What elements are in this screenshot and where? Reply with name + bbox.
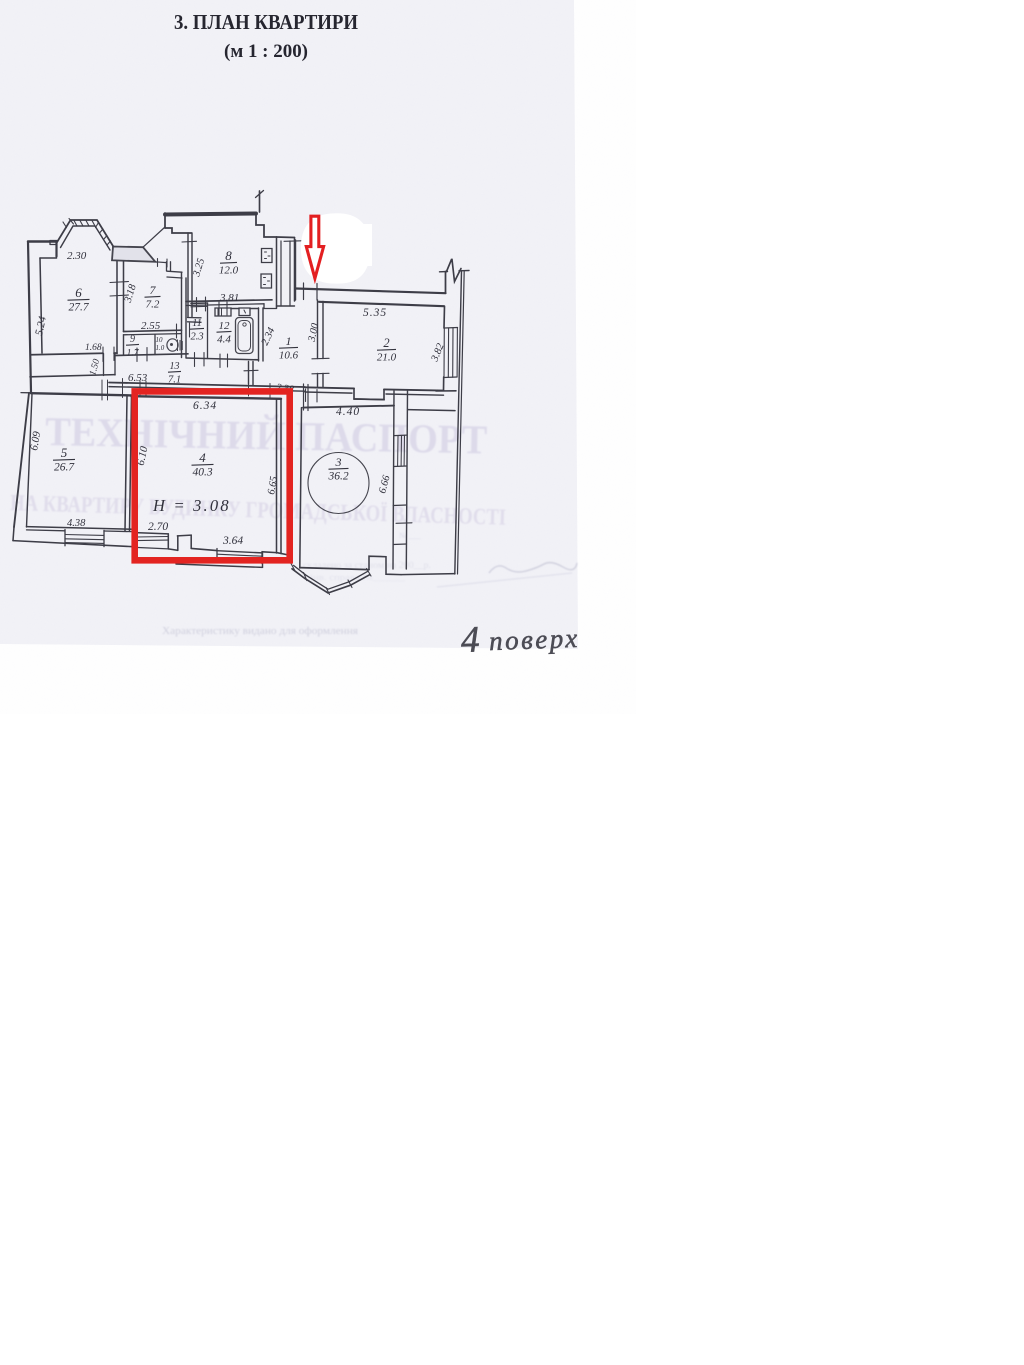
- svg-text:4: 4: [199, 450, 206, 465]
- svg-text:Н = 3.08: Н = 3.08: [152, 496, 231, 515]
- svg-text:2.55: 2.55: [141, 320, 161, 332]
- svg-text:11: 11: [192, 318, 202, 329]
- svg-text:2.3: 2.3: [190, 332, 203, 343]
- svg-text:13: 13: [170, 361, 180, 372]
- svg-text:2: 2: [383, 336, 389, 350]
- svg-text:9: 9: [130, 334, 135, 345]
- svg-text:1.68: 1.68: [85, 343, 102, 353]
- svg-text:40.3: 40.3: [192, 467, 212, 479]
- svg-text:7: 7: [150, 283, 157, 297]
- svg-text:4.38: 4.38: [67, 518, 86, 529]
- svg-text:3. ПЛАН КВАРТИРИ: 3. ПЛАН КВАРТИРИ: [174, 10, 358, 34]
- svg-text:(м 1 : 200): (м 1 : 200): [224, 41, 308, 62]
- svg-text:7.1: 7.1: [168, 375, 181, 386]
- svg-text:12: 12: [219, 320, 231, 332]
- svg-text:3.81: 3.81: [219, 292, 239, 304]
- svg-text:5: 5: [61, 445, 68, 460]
- svg-text:10: 10: [156, 336, 164, 344]
- svg-text:3: 3: [335, 455, 342, 469]
- svg-text:6: 6: [75, 285, 82, 300]
- svg-text:№ ___: № ___: [399, 531, 422, 540]
- svg-text:3.64: 3.64: [222, 535, 243, 547]
- svg-text:5.35: 5.35: [363, 307, 387, 319]
- svg-text:Характеристику видано для офор: Характеристику видано для оформлення: [162, 626, 358, 637]
- svg-text:1.7: 1.7: [127, 349, 140, 359]
- svg-text:4: 4: [460, 619, 480, 661]
- svg-text:6.34: 6.34: [193, 400, 217, 412]
- svg-text:10.6: 10.6: [279, 350, 299, 362]
- svg-text:8: 8: [225, 248, 232, 263]
- svg-text:1.0: 1.0: [156, 344, 165, 352]
- svg-text:21.0: 21.0: [377, 352, 397, 364]
- svg-text:36.2: 36.2: [327, 471, 348, 483]
- svg-text:ТЕХНІЧНИЙ ПАСПОРТ: ТЕХНІЧНИЙ ПАСПОРТ: [45, 408, 488, 462]
- svg-text:27.7: 27.7: [68, 302, 89, 314]
- svg-text:7.2: 7.2: [146, 299, 160, 311]
- svg-text:6.53: 6.53: [128, 372, 148, 384]
- svg-text:4.40: 4.40: [336, 406, 360, 418]
- svg-text:поверх: поверх: [488, 623, 580, 656]
- svg-text:4.4: 4.4: [217, 334, 231, 346]
- svg-text:26.7: 26.7: [54, 462, 75, 474]
- svg-text:12.0: 12.0: [219, 265, 239, 277]
- svg-text:1: 1: [286, 334, 292, 348]
- svg-text:2.70: 2.70: [148, 521, 168, 533]
- svg-text:2.30: 2.30: [67, 250, 87, 262]
